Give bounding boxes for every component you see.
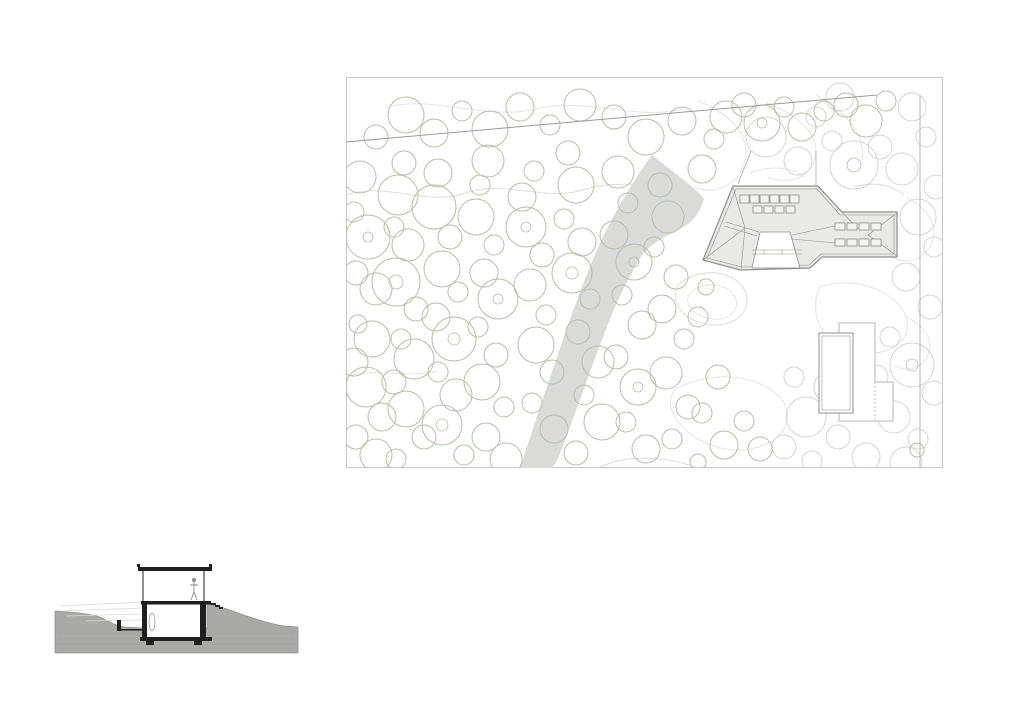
- site-plan-svg: [346, 77, 943, 468]
- skylight: [764, 206, 773, 213]
- section-structure: [200, 604, 206, 637]
- skylight: [740, 195, 749, 203]
- section-structure: [194, 641, 202, 645]
- skylight: [790, 195, 799, 203]
- skylight: [770, 195, 779, 203]
- pool-outline: [819, 333, 853, 413]
- human-figure-icon: [192, 578, 196, 582]
- skylight: [753, 206, 762, 213]
- skylight: [871, 239, 881, 246]
- skylight: [775, 206, 784, 213]
- skylight: [847, 223, 857, 230]
- skylight: [835, 239, 845, 246]
- skylight: [871, 223, 881, 230]
- section-structure: [215, 605, 220, 607]
- section-structure: [142, 604, 147, 637]
- site-plan: [346, 77, 943, 468]
- section-structure: [146, 641, 154, 645]
- section-drawing: [30, 540, 310, 665]
- skylight: [835, 223, 845, 230]
- skylight: [750, 195, 759, 203]
- architectural-sheet: { "sheet": { "background": "#ffffff", "d…: [0, 0, 1024, 724]
- section-structure: [140, 637, 212, 641]
- section-structure: [117, 629, 142, 631]
- skylight: [859, 223, 869, 230]
- section-svg: [30, 540, 310, 665]
- section-structure: [137, 564, 140, 567]
- skylight: [780, 195, 789, 203]
- skylight: [760, 195, 769, 203]
- section-structure: [141, 601, 211, 605]
- skylight: [859, 239, 869, 246]
- skylight: [847, 239, 857, 246]
- section-structure: [211, 603, 216, 605]
- section-structure: [209, 564, 212, 567]
- section-structure: [138, 567, 212, 571]
- section-structure: [219, 607, 223, 609]
- skylight: [786, 206, 795, 213]
